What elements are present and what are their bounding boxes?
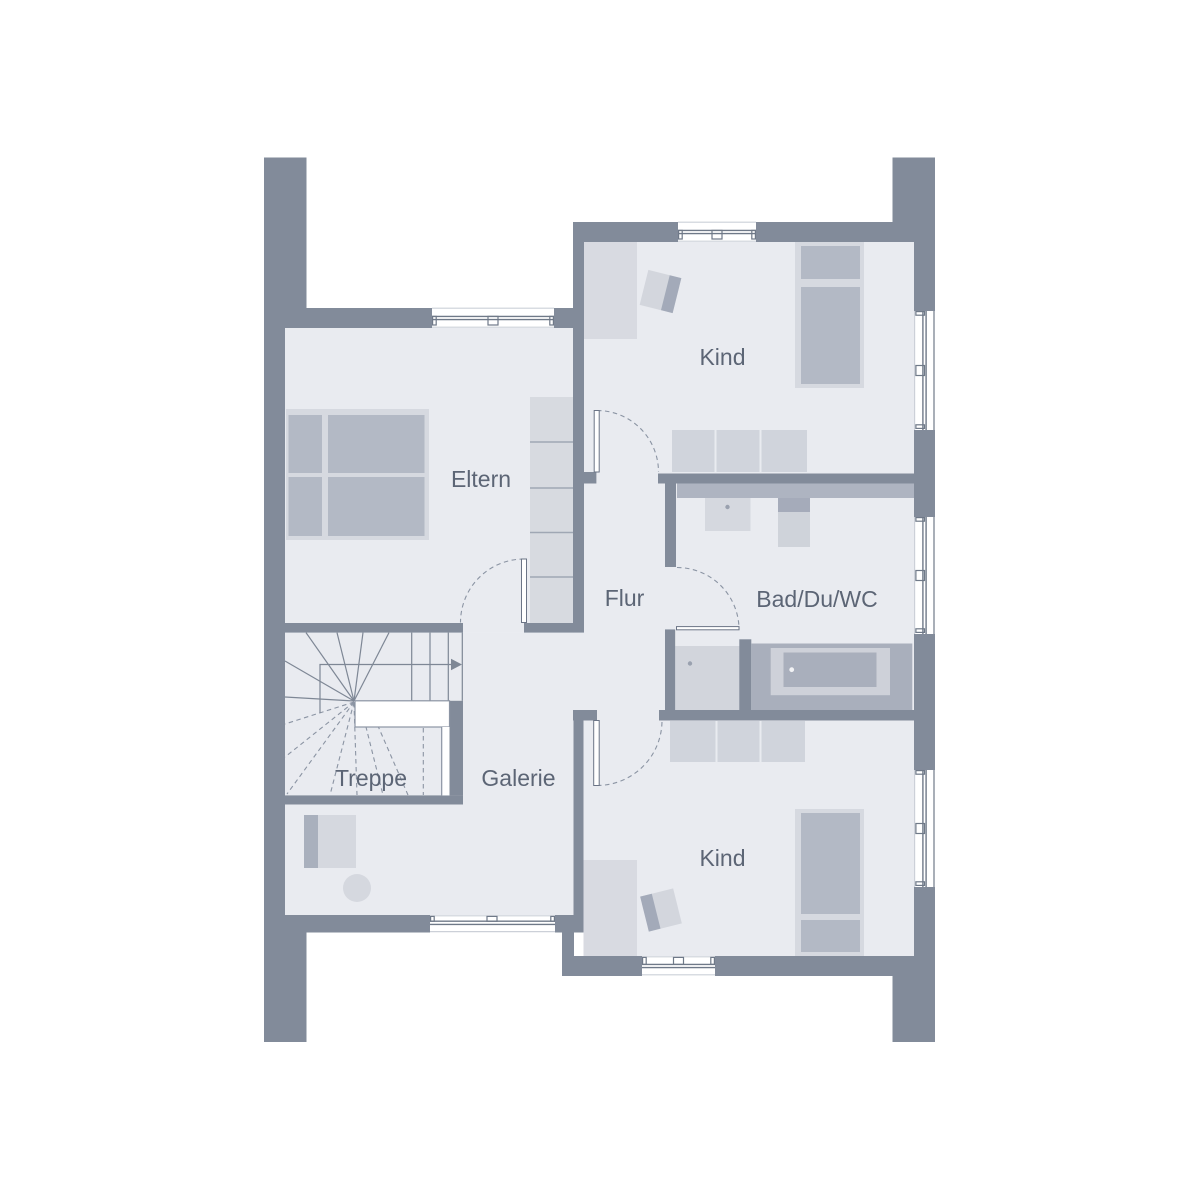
svg-text:Treppe: Treppe xyxy=(335,765,407,791)
svg-text:Kind: Kind xyxy=(699,344,745,370)
svg-text:Galerie: Galerie xyxy=(481,765,555,791)
svg-text:Flur: Flur xyxy=(605,585,645,611)
svg-text:Kind: Kind xyxy=(699,845,745,871)
svg-text:Eltern: Eltern xyxy=(451,466,511,492)
svg-text:Bad/Du/WC: Bad/Du/WC xyxy=(756,586,877,612)
